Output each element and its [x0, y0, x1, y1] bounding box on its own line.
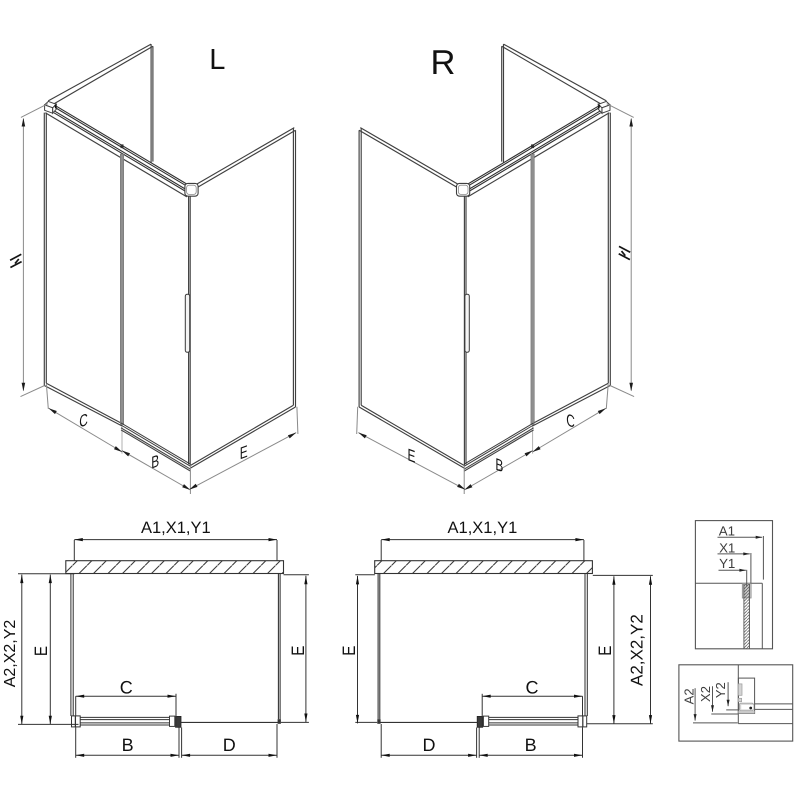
svg-text:E: E: [288, 646, 308, 656]
svg-text:R: R: [431, 44, 456, 82]
svg-text:E: E: [408, 445, 416, 467]
svg-text:E: E: [595, 646, 615, 656]
svg-text:A2,X2,Y2: A2,X2,Y2: [628, 614, 647, 686]
svg-text:A1,X1,Y1: A1,X1,Y1: [448, 519, 518, 537]
svg-text:B: B: [122, 735, 134, 755]
svg-text:A1: A1: [719, 523, 735, 538]
svg-text:E: E: [339, 646, 359, 656]
svg-text:X1: X1: [719, 540, 735, 555]
svg-text:E: E: [240, 442, 248, 464]
svg-text:D: D: [423, 735, 436, 755]
svg-text:A2,X2,Y2: A2,X2,Y2: [2, 620, 19, 688]
svg-text:Y1: Y1: [719, 556, 735, 571]
svg-text:C: C: [566, 410, 575, 432]
svg-text:Y2: Y2: [713, 682, 728, 698]
svg-text:E: E: [31, 646, 51, 656]
svg-text:L: L: [209, 44, 225, 76]
svg-text:A1,X1,Y1: A1,X1,Y1: [141, 519, 211, 537]
svg-text:C: C: [526, 677, 539, 697]
svg-text:C: C: [79, 410, 88, 432]
svg-text:X2: X2: [698, 686, 713, 702]
svg-text:B: B: [151, 451, 159, 473]
svg-text:D: D: [223, 735, 236, 755]
svg-text:B: B: [525, 735, 537, 755]
svg-text:C: C: [120, 677, 133, 697]
svg-text:B: B: [495, 455, 503, 477]
svg-text:A2: A2: [681, 688, 696, 704]
